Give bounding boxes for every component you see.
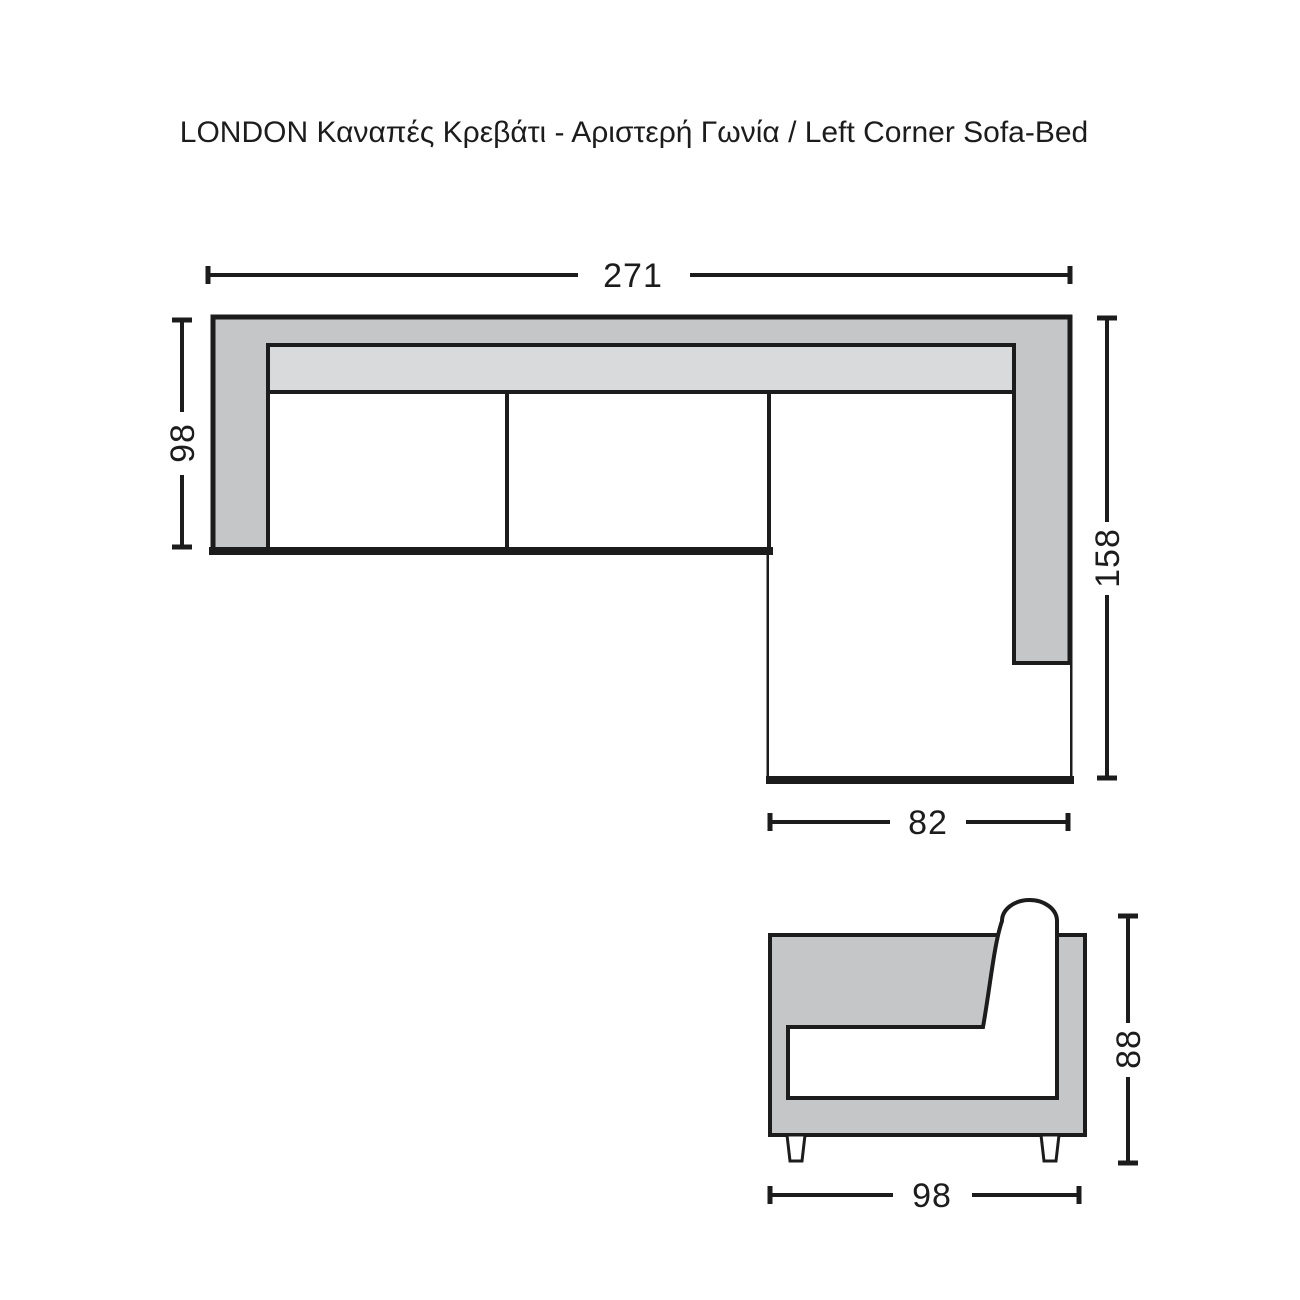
- sofa-leg-right: [1041, 1135, 1059, 1161]
- seat-area-left: [268, 392, 769, 551]
- dimension-chaise-width: 82: [770, 804, 1068, 842]
- sofa-leg-left: [787, 1135, 805, 1161]
- page: LONDON Καναπές Κρεβάτι - Αριστερή Γωνία …: [0, 0, 1300, 1300]
- technical-drawing: 271 98 158: [0, 0, 1300, 1300]
- dimension-total-width: 271: [208, 257, 1070, 295]
- dim-label-height: 88: [1110, 1029, 1148, 1069]
- plan-view: 271 98 158: [164, 257, 1127, 842]
- dimension-left-depth: 98: [164, 320, 202, 547]
- dim-label-right-length: 158: [1089, 528, 1127, 588]
- dimension-height: 88: [1110, 916, 1148, 1163]
- dim-label-side-depth: 98: [912, 1177, 952, 1215]
- dim-label-left-depth: 98: [164, 423, 202, 463]
- dimension-right-length: 158: [1089, 318, 1127, 778]
- back-cushion-strip: [268, 345, 1014, 392]
- dim-label-chaise-width: 82: [908, 804, 948, 842]
- dim-label-total-width: 271: [603, 257, 663, 295]
- dimension-side-depth: 98: [770, 1177, 1079, 1215]
- side-view: 88 98: [770, 900, 1148, 1215]
